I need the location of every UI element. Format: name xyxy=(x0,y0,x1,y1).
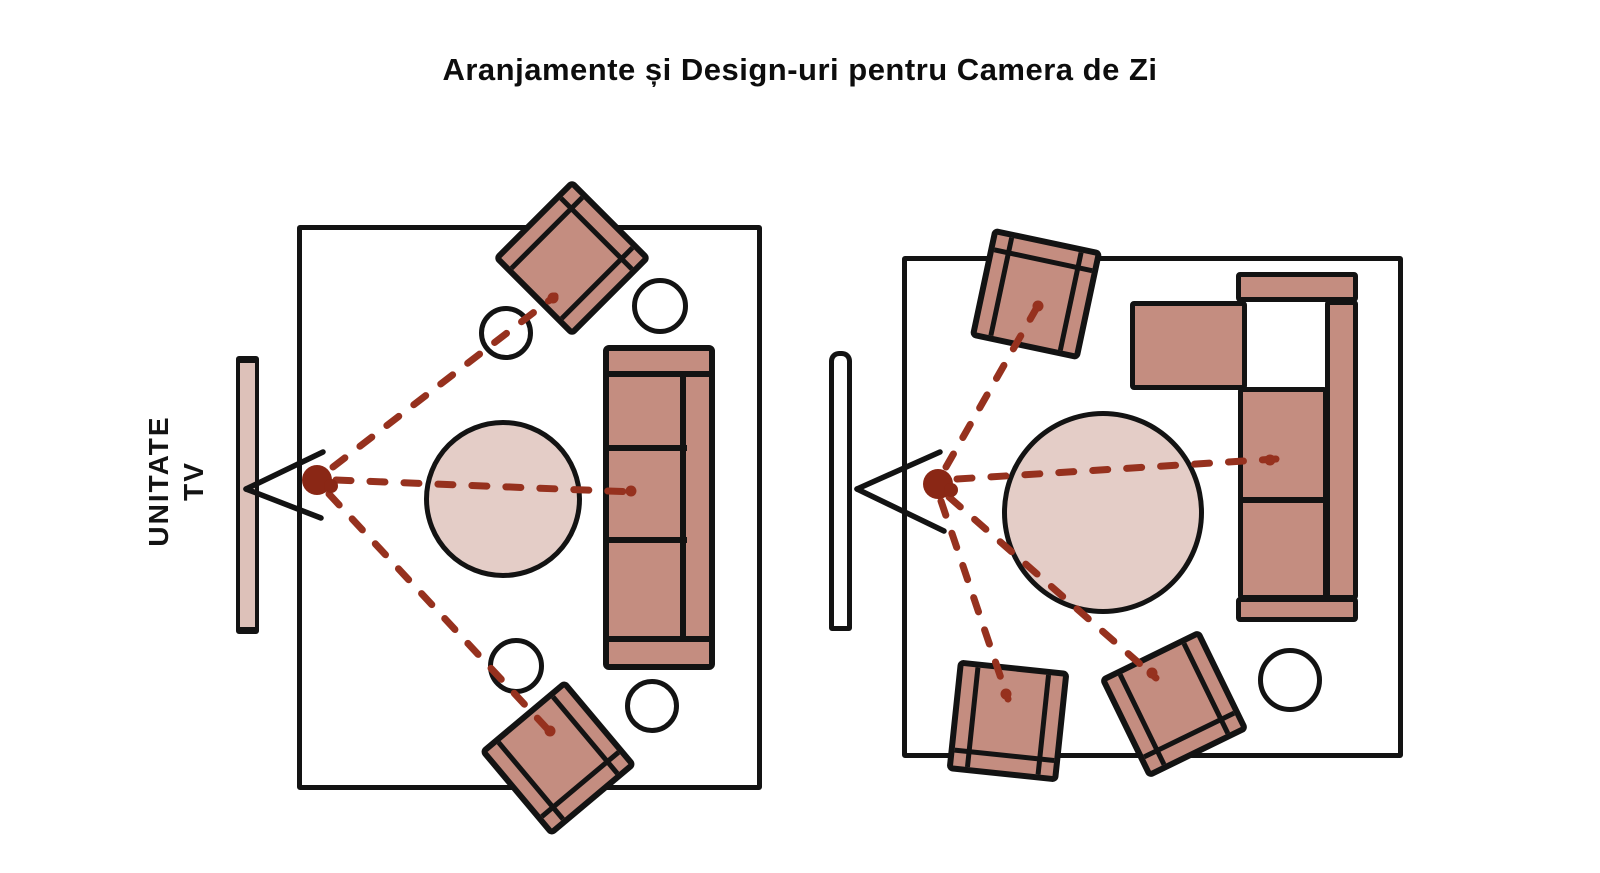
sectional-back-top xyxy=(1236,272,1358,302)
sectional-chaise-seat xyxy=(1130,301,1247,390)
tv-unit-label-line2: TV xyxy=(176,408,211,554)
tv-unit-left xyxy=(236,356,259,634)
tv-unit-right xyxy=(829,351,852,631)
sofa-cushion-divider xyxy=(609,445,687,451)
three-seat-sofa xyxy=(603,345,715,670)
round-coffee-table-left xyxy=(424,420,582,578)
side-table xyxy=(1258,648,1322,712)
sectional-cushion-divider xyxy=(1243,497,1323,503)
sofa-cushion-divider xyxy=(609,537,687,543)
sectional-back-right xyxy=(1325,300,1358,600)
l-shaped-sectional-sofa xyxy=(1130,272,1358,622)
sectional-armrest-bottom xyxy=(1236,597,1358,622)
side-table xyxy=(632,278,688,334)
sofa-armrest-line xyxy=(609,636,709,642)
armchair xyxy=(946,659,1069,782)
armchair xyxy=(970,228,1103,361)
tv-unit-label: UNITATE TV xyxy=(141,408,211,554)
sectional-seats xyxy=(1238,387,1328,600)
tv-unit-label-line1: UNITATE xyxy=(141,408,176,554)
sofa-armrest-line xyxy=(609,371,709,377)
side-table xyxy=(625,679,679,733)
sofa-back-line xyxy=(680,371,686,642)
side-table xyxy=(479,306,533,360)
floor-plan-canvas: Aranjamente și Design-uri pentru Camera … xyxy=(0,0,1600,873)
side-table xyxy=(488,638,544,694)
page-title: Aranjamente și Design-uri pentru Camera … xyxy=(0,52,1600,88)
